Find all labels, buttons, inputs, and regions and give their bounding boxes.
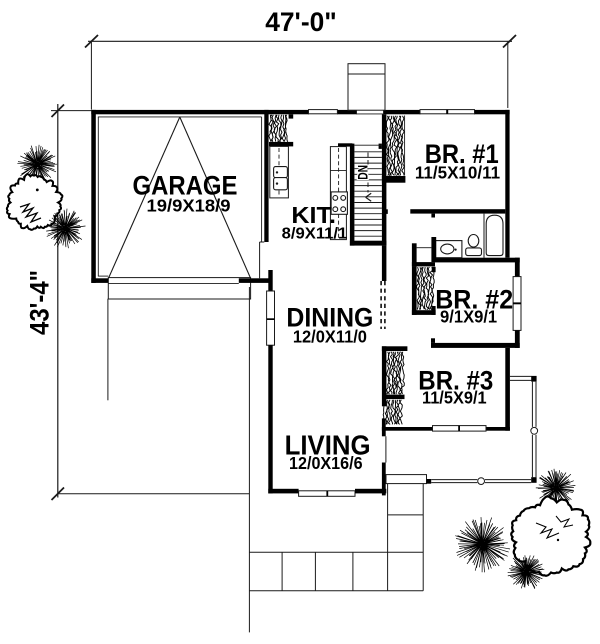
svg-text:8/9X11/1: 8/9X11/1 xyxy=(282,226,348,243)
svg-text:19/9X18/9: 19/9X18/9 xyxy=(147,196,231,216)
svg-text:12/0X16/6: 12/0X16/6 xyxy=(289,453,363,473)
svg-text:12/0X11/0: 12/0X11/0 xyxy=(293,326,367,346)
svg-text:DN: DN xyxy=(355,165,370,180)
svg-text:43'-4": 43'-4" xyxy=(25,270,55,335)
svg-text:47'-0": 47'-0" xyxy=(265,7,337,37)
svg-text:11/5X9/1: 11/5X9/1 xyxy=(422,387,487,407)
svg-text:9/1X9/1: 9/1X9/1 xyxy=(440,306,497,326)
svg-text:KIT.: KIT. xyxy=(291,202,336,228)
svg-text:11/5X10/11: 11/5X10/11 xyxy=(415,162,501,182)
